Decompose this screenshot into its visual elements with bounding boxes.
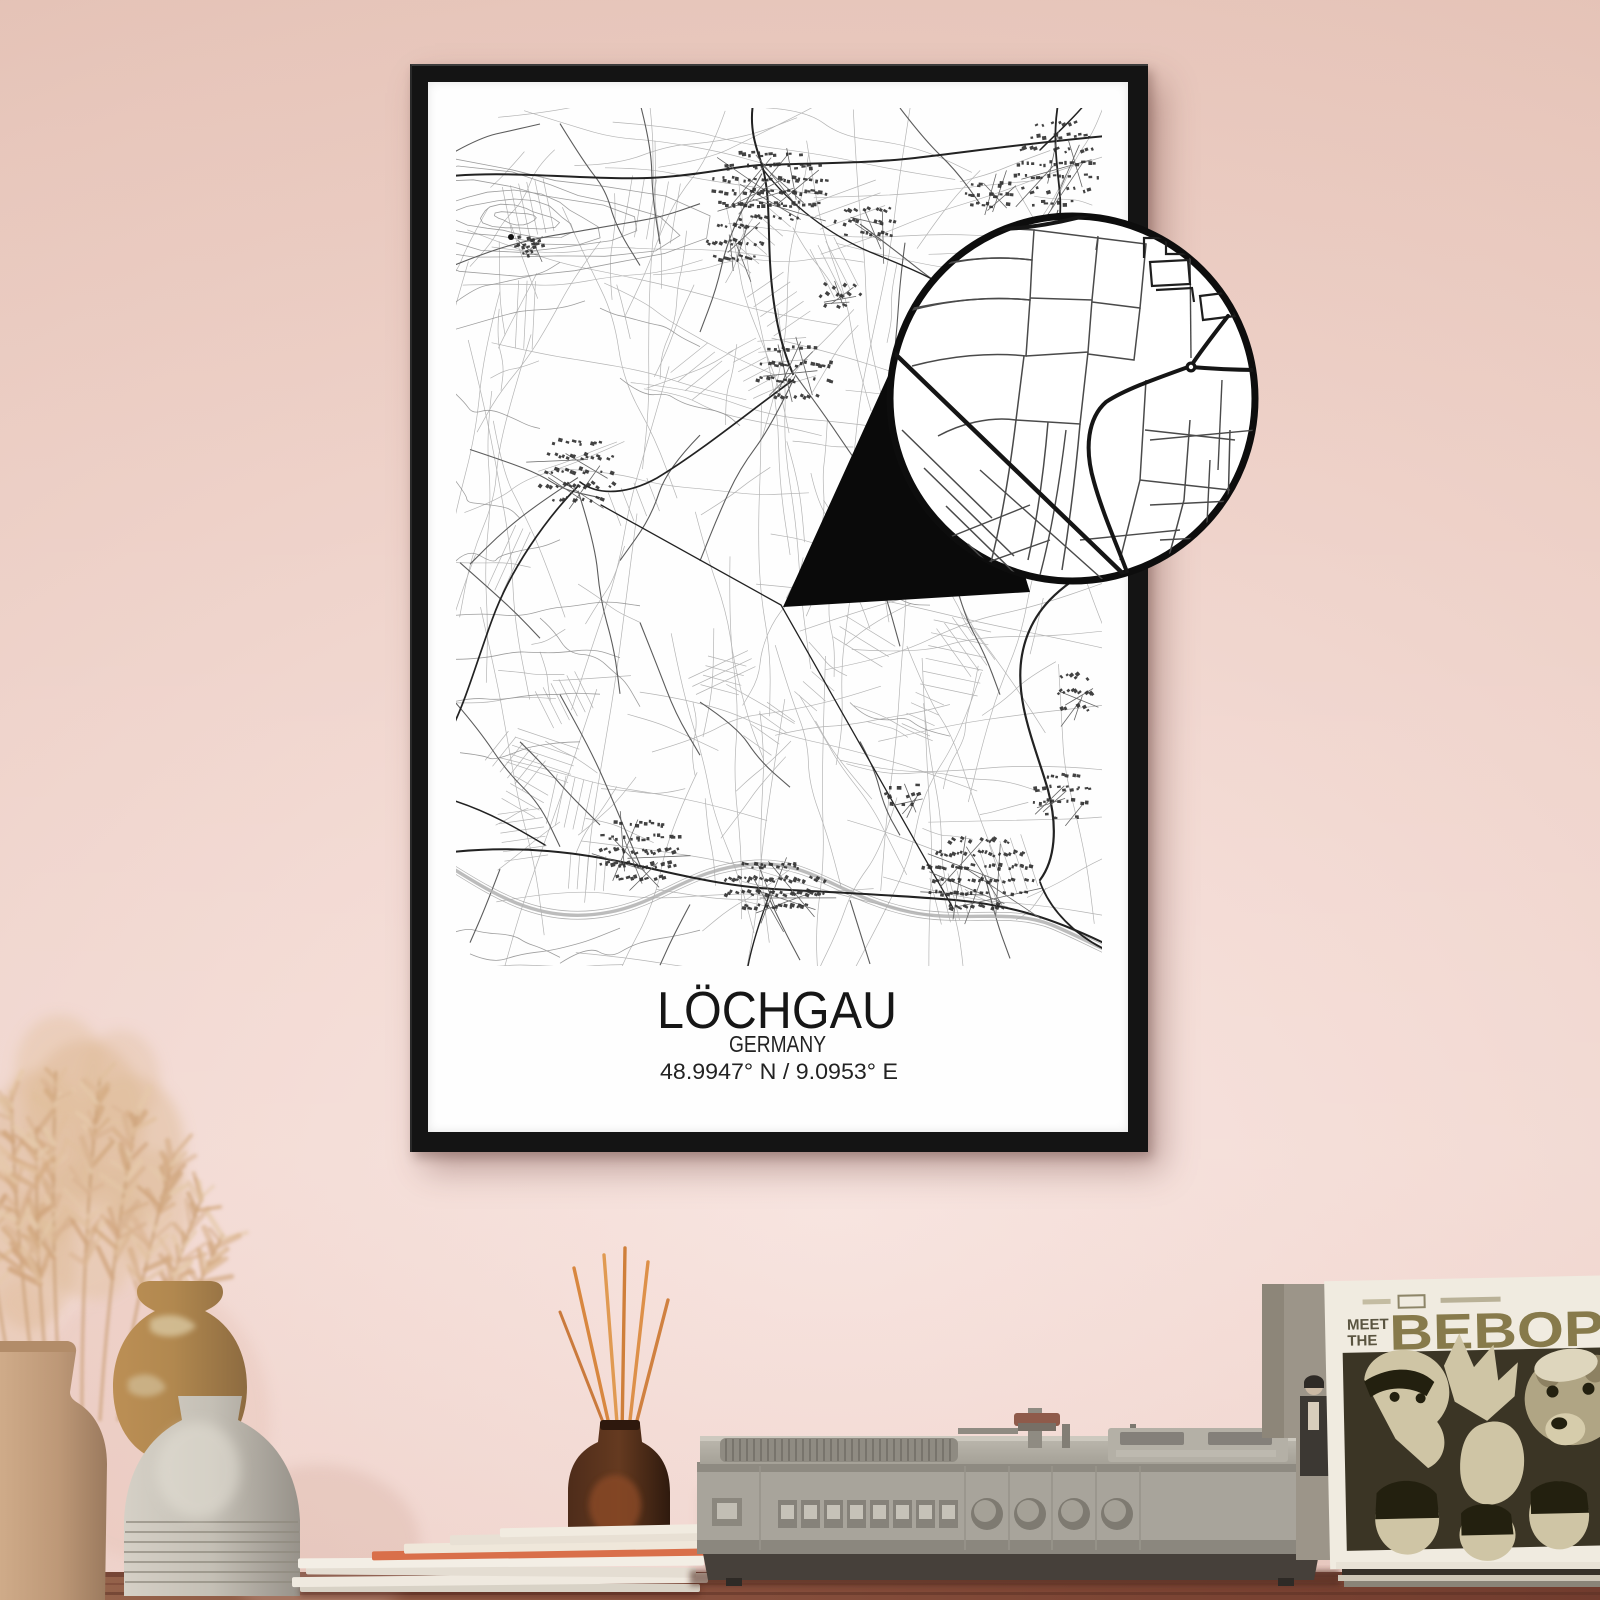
svg-text:MEET: MEET [1347, 1316, 1389, 1334]
svg-text:THE: THE [1347, 1332, 1377, 1350]
